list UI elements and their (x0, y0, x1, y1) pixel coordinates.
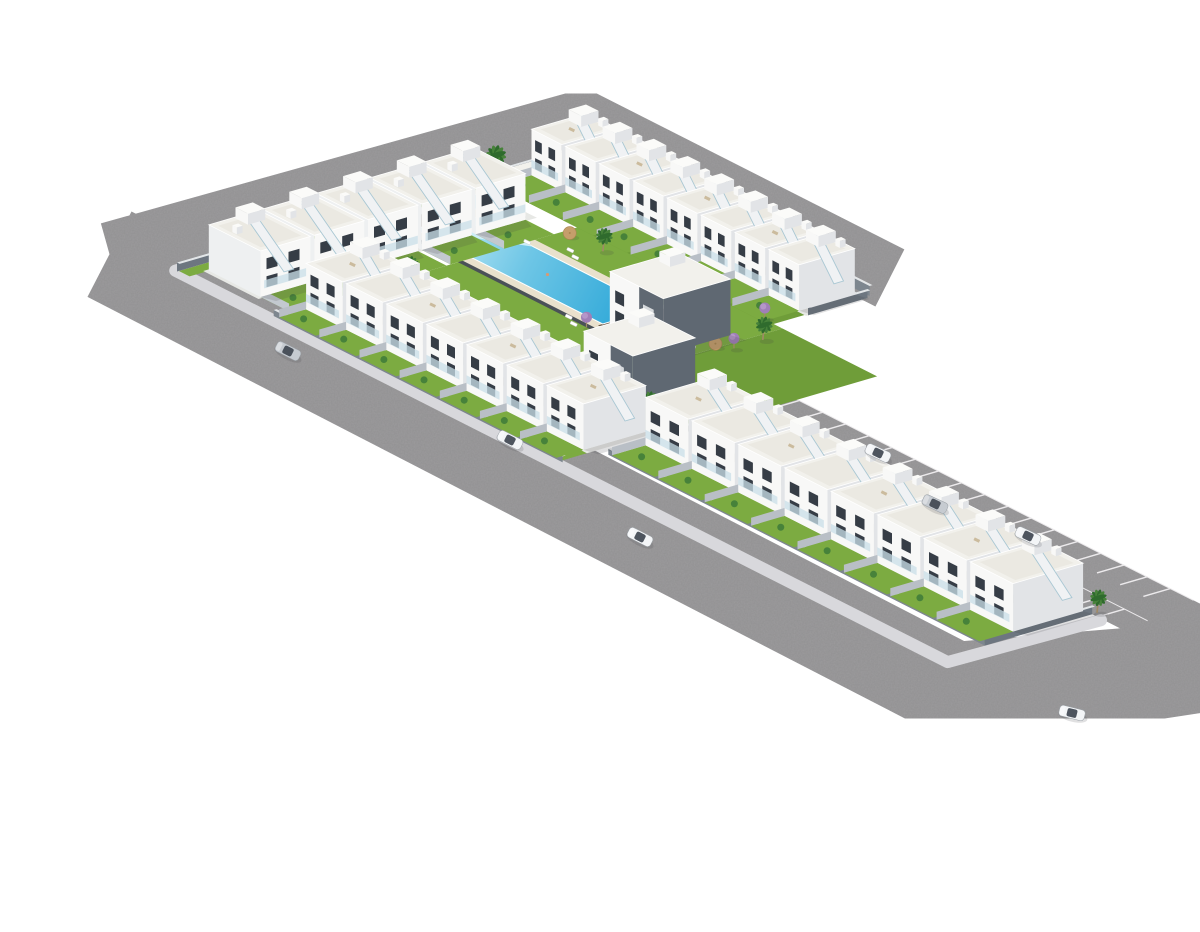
garden-shrub (684, 477, 691, 484)
garden-shrub (777, 524, 784, 531)
residential-complex-aerial-render: Aerial 3D architectural render of an L-s… (40, 16, 1200, 916)
tree-shadow (731, 348, 743, 352)
garden-shrub (916, 594, 923, 601)
garden-shrub (731, 500, 738, 507)
garden-shrub (340, 336, 347, 343)
tree-shadow (760, 339, 774, 344)
garden-shrub (421, 376, 428, 383)
tree-crown-highlight (582, 313, 588, 319)
garden-shrub (501, 417, 508, 424)
garden-shrub (621, 233, 628, 240)
garden-shrub (541, 437, 548, 444)
garden-shrub (587, 216, 594, 223)
site-plan-canvas (40, 16, 1200, 916)
garden-shrub (553, 199, 560, 206)
tree-shadow (600, 250, 614, 255)
tree-shadow (1094, 612, 1108, 617)
garden-shrub (380, 356, 387, 363)
garden-shrub (300, 315, 307, 322)
garden-shrub (461, 397, 468, 404)
garden-shrub (638, 453, 645, 460)
tree-crown-highlight (760, 304, 766, 310)
garden-shrub (963, 618, 970, 625)
garden-shrub (870, 571, 877, 578)
swimmer-figure (546, 273, 549, 276)
garden-shrub (824, 547, 831, 554)
parasol-pole (569, 232, 571, 234)
